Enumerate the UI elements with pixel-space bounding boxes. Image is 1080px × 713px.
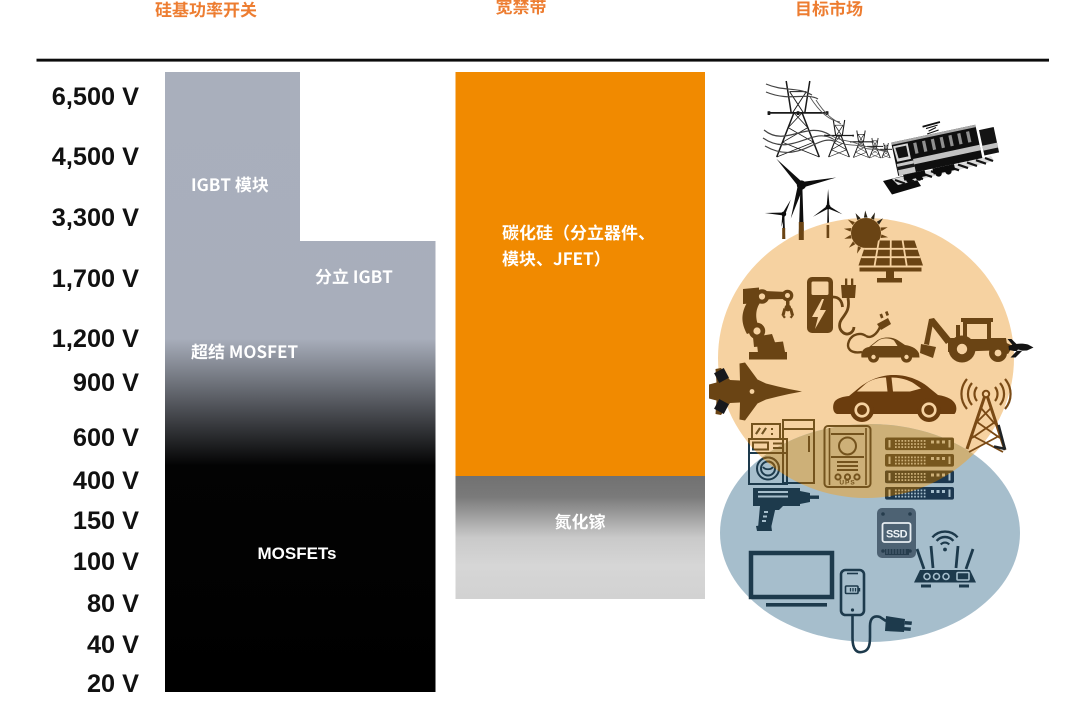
svg-text:150 V: 150 V [73,507,139,535]
svg-text:6,500 V: 6,500 V [52,83,139,111]
svg-text:SSD: SSD [886,529,908,541]
svg-text:MOSFETs: MOSFETs [257,544,336,563]
svg-text:20 V: 20 V [87,670,139,698]
svg-text:600 V: 600 V [73,424,139,452]
svg-text:80 V: 80 V [87,590,139,618]
svg-text:400 V: 400 V [73,467,139,495]
svg-text:4,500 V: 4,500 V [52,143,139,171]
svg-text:100 V: 100 V [73,548,139,576]
svg-text:1,700 V: 1,700 V [52,265,139,293]
svg-text:1,200 V: 1,200 V [52,325,139,353]
svg-text:UPS: UPS [839,480,855,487]
svg-text:900 V: 900 V [73,369,139,397]
svg-text:40 V: 40 V [87,631,139,659]
svg-text:3,300 V: 3,300 V [52,204,139,232]
